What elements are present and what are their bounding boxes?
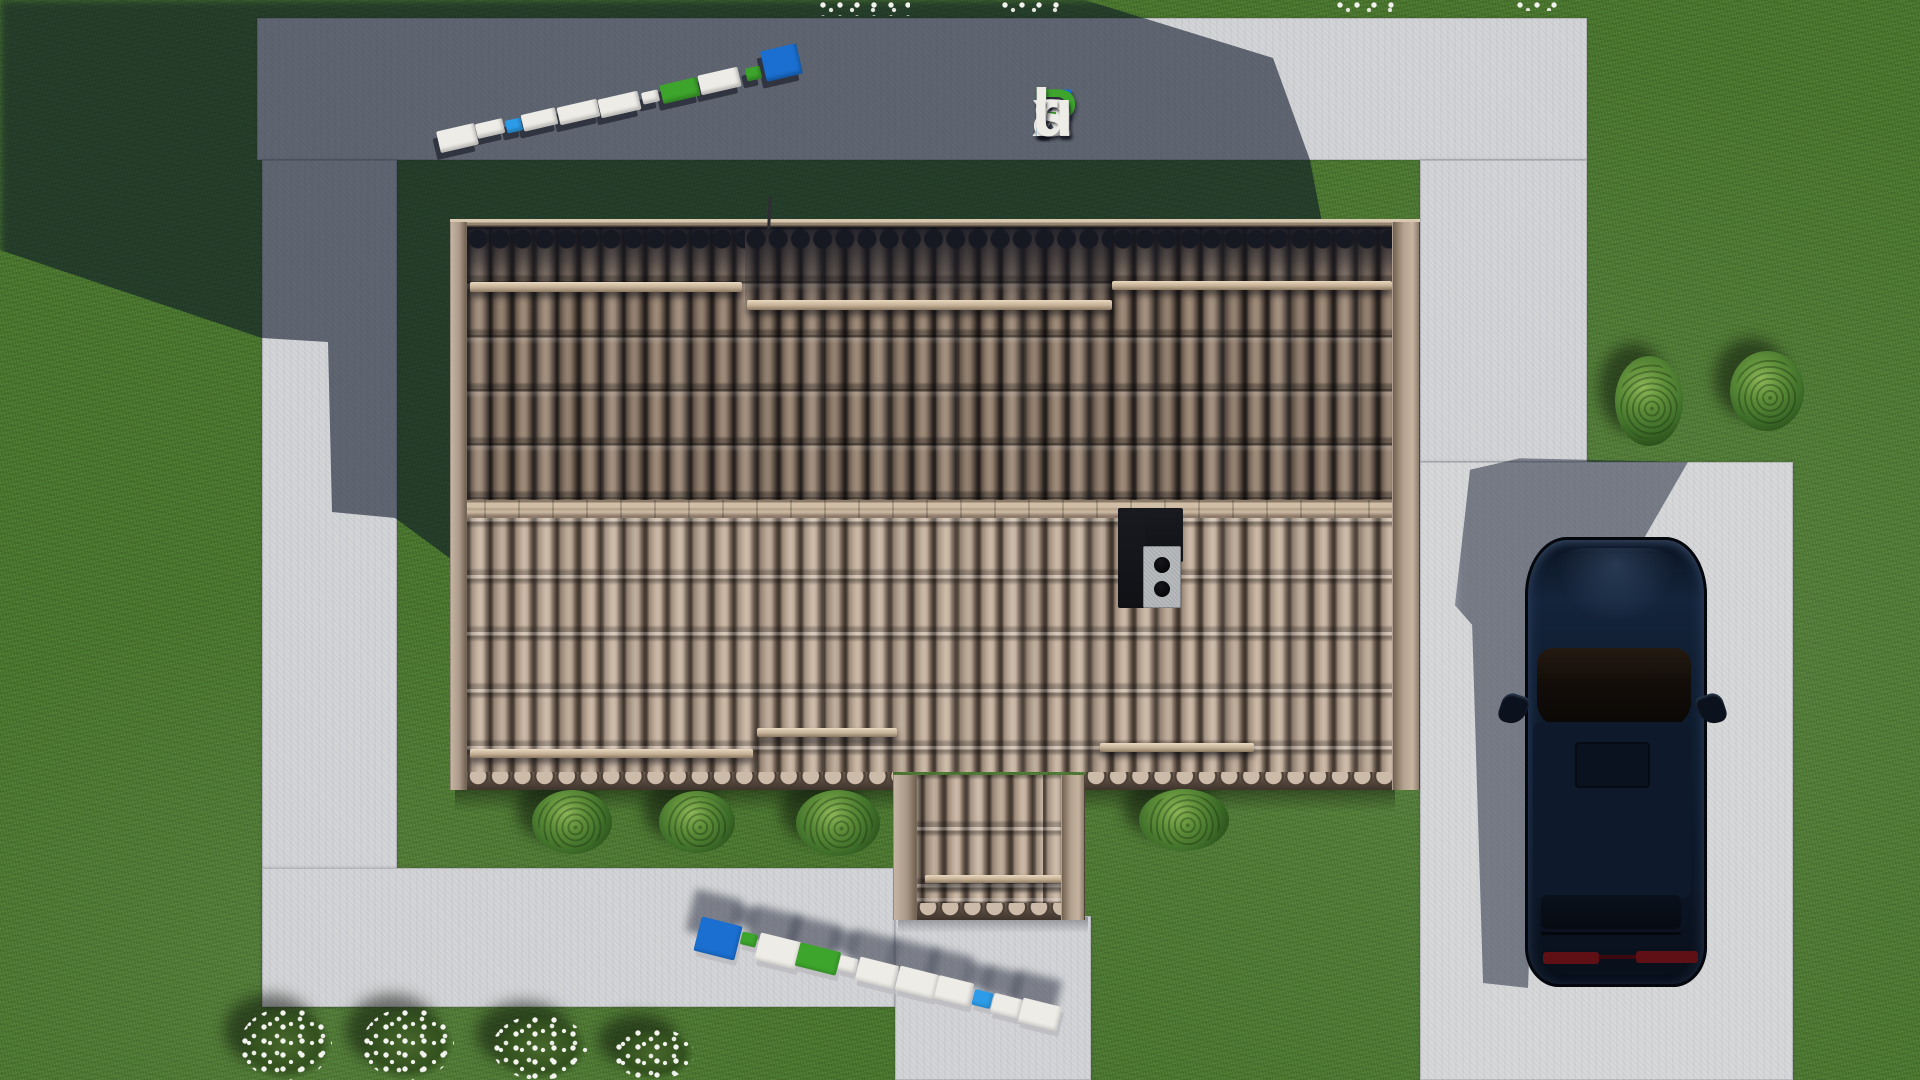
roof-eave-edge-left — [467, 772, 893, 790]
flower-patch — [362, 1008, 454, 1080]
chimney-flue-2 — [1154, 581, 1170, 597]
roof-eave-shadow-left — [467, 227, 745, 287]
car-trunk-line — [1541, 932, 1681, 935]
car-hood-highlight — [1545, 548, 1687, 643]
roof-barge-right — [1392, 222, 1420, 790]
roof-ridge — [450, 500, 1420, 518]
snow-guard-upper-left — [470, 282, 742, 292]
chimney-flue-1 — [1154, 557, 1170, 573]
roof-eave-shadow-mid — [745, 227, 1112, 305]
car-taillight-right — [1636, 951, 1698, 963]
bush — [796, 790, 880, 856]
chimney-cap — [1143, 546, 1181, 608]
snow-guard-upper-mid — [747, 300, 1112, 310]
logo-letter: u — [1032, 74, 1072, 152]
roof-barge-left — [450, 222, 467, 790]
flower-strip — [1000, 0, 1062, 14]
flower-patch — [240, 1008, 332, 1080]
porch-roof-tiles — [917, 775, 1061, 903]
bush — [659, 791, 735, 853]
car-sunroof — [1575, 742, 1650, 788]
bush — [1139, 789, 1229, 851]
snow-guard-porch — [925, 875, 1063, 883]
path-right — [1420, 160, 1587, 462]
chimney-body-side — [1118, 508, 1145, 608]
flower-patch — [614, 1028, 694, 1080]
porch-barge-right — [1061, 775, 1085, 920]
snow-guard-lower-right — [1100, 743, 1254, 752]
bush — [1730, 351, 1804, 431]
snow-guard-upper-right — [1112, 281, 1392, 290]
car-rear-window — [1541, 895, 1681, 929]
roof-eave-shadow-right — [1112, 227, 1392, 285]
site-plan-render: FixPlans.ru — [0, 0, 1920, 1080]
bush — [532, 790, 612, 854]
bush — [1615, 356, 1683, 446]
snow-guard-lower-left — [470, 749, 753, 758]
flower-strip — [818, 0, 910, 16]
car-rear-accent — [1599, 955, 1636, 959]
roof-plane-lower — [467, 518, 1392, 772]
fixplans-logo: FixPlans.ru — [1032, 74, 1452, 154]
car-windshield — [1537, 648, 1691, 728]
car-taillight-left — [1543, 952, 1599, 964]
roof-eave-edge-right — [1085, 772, 1392, 790]
porch-eave-edge — [917, 903, 1061, 920]
flower-patch — [492, 1015, 588, 1080]
snow-guard-lower-mid — [757, 728, 897, 737]
porch-barge-left — [893, 775, 917, 920]
flower-strip — [1515, 0, 1567, 11]
flower-strip — [1335, 0, 1403, 13]
